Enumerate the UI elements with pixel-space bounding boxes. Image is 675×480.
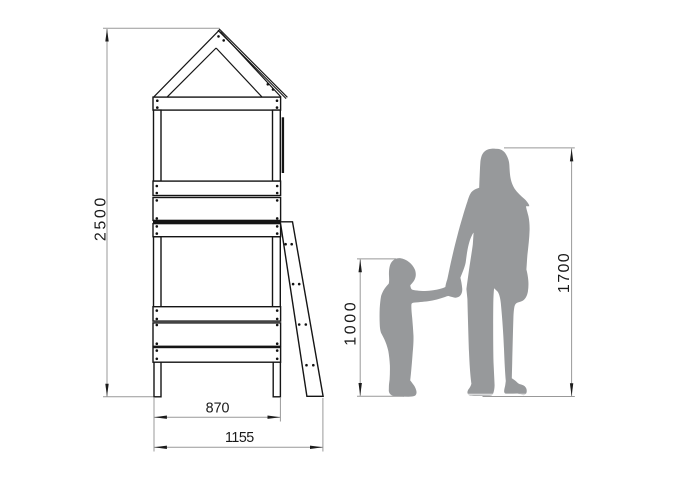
- svg-text:1700: 1700: [556, 252, 573, 293]
- svg-text:2500: 2500: [92, 195, 109, 241]
- svg-text:1000: 1000: [342, 300, 359, 346]
- svg-text:870: 870: [206, 400, 230, 416]
- svg-text:1155: 1155: [225, 430, 254, 446]
